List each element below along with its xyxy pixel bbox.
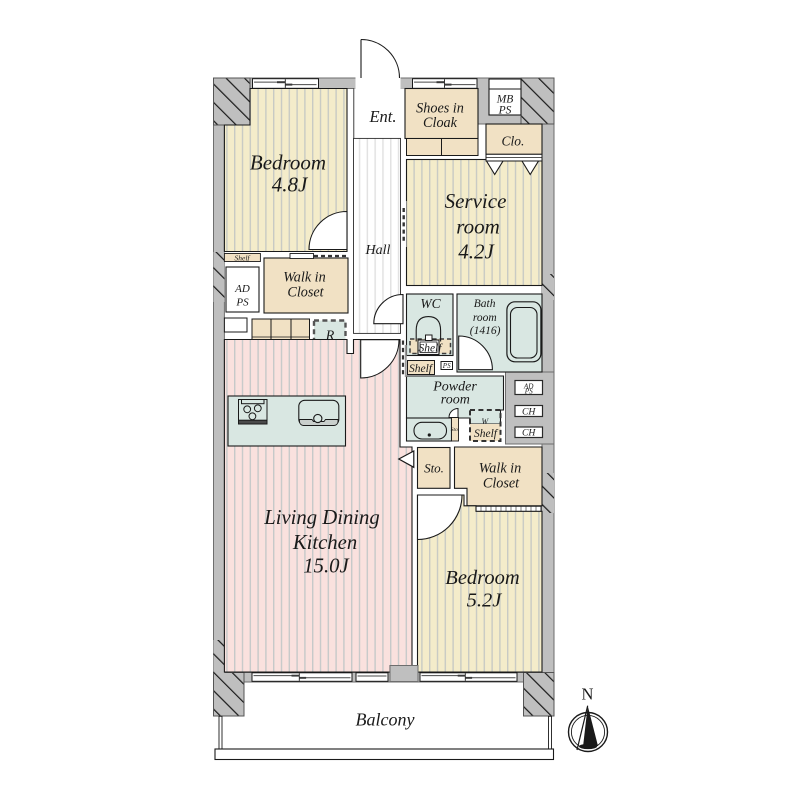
svg-text:Bedroom: Bedroom [250,151,326,175]
svg-text:PS: PS [524,388,533,396]
svg-text:Shelf: Shelf [409,363,434,375]
svg-text:room: room [473,312,497,324]
svg-text:Sto.: Sto. [451,427,459,433]
svg-text:PS: PS [498,105,512,117]
svg-text:CH: CH [522,428,536,439]
svg-text:Clo.: Clo. [502,133,525,148]
svg-text:PS: PS [442,362,451,370]
svg-text:15.0J: 15.0J [303,556,349,578]
svg-text:Shelf: Shelf [419,343,444,355]
svg-text:(1416): (1416) [470,325,501,337]
svg-text:AD: AD [234,283,250,295]
svg-text:5.2J: 5.2J [467,590,503,612]
svg-text:Closet: Closet [287,285,324,301]
svg-text:Living Dining: Living Dining [263,507,380,529]
svg-text:CH: CH [522,406,536,417]
svg-text:N: N [582,685,594,704]
svg-text:room: room [441,393,470,408]
svg-text:Shelf: Shelf [474,428,499,440]
svg-text:Walk in: Walk in [479,461,521,477]
svg-text:Ent.: Ent. [368,107,396,126]
svg-text:Walk in: Walk in [283,270,325,286]
svg-text:Cloak: Cloak [423,115,458,131]
svg-text:WC: WC [420,296,441,311]
svg-text:Service: Service [445,189,507,213]
svg-text:Balcony: Balcony [356,709,415,729]
svg-text:Kitchen: Kitchen [292,532,357,554]
svg-text:Bath: Bath [474,298,496,310]
svg-text:4.2J: 4.2J [458,239,495,263]
svg-text:Shelf: Shelf [235,253,251,262]
svg-text:Bedroom: Bedroom [445,567,519,589]
svg-text:Closet: Closet [483,476,520,492]
svg-text:PS: PS [235,297,249,309]
svg-text:4.8J: 4.8J [272,172,309,196]
svg-text:Hall: Hall [365,243,391,258]
svg-text:room: room [456,214,500,238]
svg-text:Sto.: Sto. [424,461,444,476]
